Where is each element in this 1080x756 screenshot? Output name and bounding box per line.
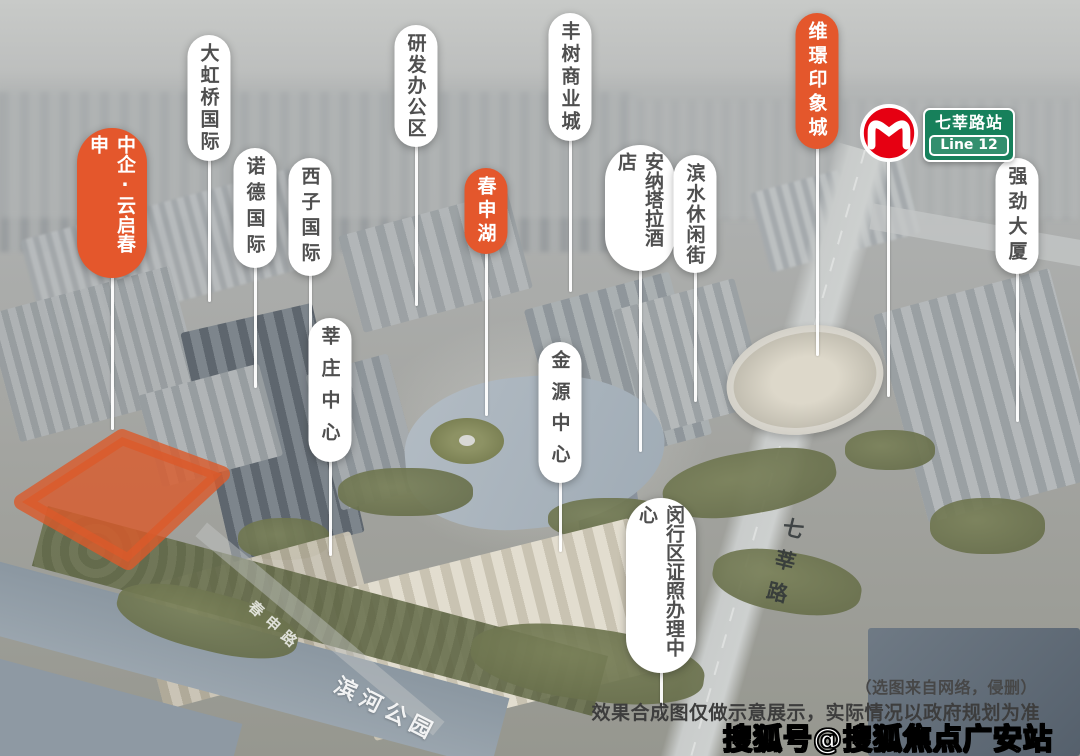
map-pin: 丰树商业城 [549, 13, 592, 141]
green-area [930, 498, 1045, 554]
green-area [845, 430, 935, 470]
map-pin: 强劲大厦 [996, 158, 1039, 274]
map-pin: 大虹桥国际 [188, 35, 231, 161]
map-pin: 诺德国际 [234, 148, 277, 268]
pin-stem [639, 266, 642, 452]
map-pin: 莘庄中心 [309, 318, 352, 462]
metro-station-name: 七莘路站 [929, 113, 1009, 133]
pin-stem [569, 136, 572, 292]
metro-line-number: Line 12 [929, 135, 1009, 156]
pin-stem [694, 268, 697, 402]
map-pin: 金源中心 [539, 342, 582, 483]
metro-stem [887, 158, 890, 397]
sohu-watermark: 搜狐号@搜狐焦点广安站 [723, 716, 1053, 756]
metro-station-badge: 七莘路站 Line 12 [923, 108, 1015, 162]
pin-stem [254, 263, 257, 388]
pin-stem [415, 142, 418, 306]
image-source-note: （选图来自网络，侵删） [855, 674, 1037, 698]
map-pin: 安纳塔拉酒店 [605, 145, 675, 271]
map-pin: 维璟印象城 [796, 13, 839, 149]
pin-stem [1016, 269, 1019, 422]
city-block [873, 268, 1080, 523]
map-pin: 西子国际 [289, 158, 332, 276]
map-pin: 中企·云启春申 [77, 128, 147, 278]
map-pin: 研发办公区 [395, 25, 438, 147]
map-pin: 滨水休闲街 [674, 155, 717, 273]
map-pin: 闵行区证照办理中心 [626, 498, 696, 673]
aerial-masterplan-map: 大虹桥国际中企·云启春申诺德国际西子国际研发办公区春申湖丰树商业城安纳塔拉酒店滨… [0, 0, 1080, 756]
pin-stem [329, 457, 332, 556]
pin-stem [485, 249, 488, 416]
pin-stem [559, 478, 562, 552]
green-area [338, 468, 473, 516]
sky [0, 0, 1080, 100]
pin-stem [208, 156, 211, 302]
pin-stem [816, 144, 819, 356]
map-pin: 春申湖 [465, 168, 508, 254]
pin-stem [111, 273, 114, 430]
shanghai-metro-logo-icon [858, 102, 920, 164]
lake-island [430, 418, 504, 464]
